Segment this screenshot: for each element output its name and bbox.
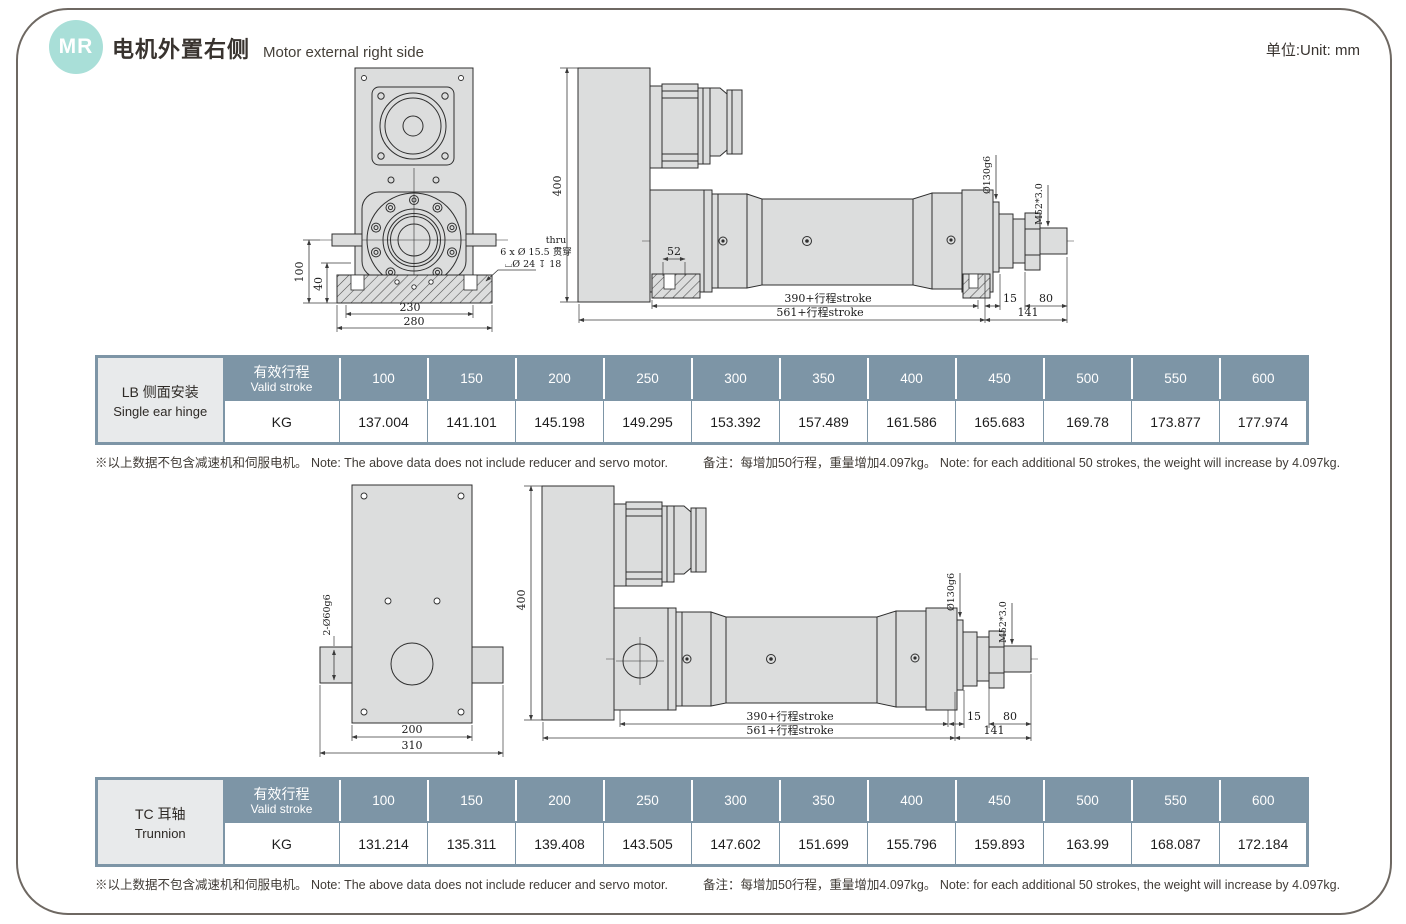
weight-value: 153.392 xyxy=(692,400,780,444)
dim-15: 15 xyxy=(967,710,981,723)
stroke-value: 550 xyxy=(1132,779,1220,823)
stroke-value: 350 xyxy=(780,779,868,823)
valid-stroke-header: 有效行程 Valid stroke xyxy=(224,779,340,823)
weight-value: 147.602 xyxy=(692,822,780,866)
stroke-value: 200 xyxy=(516,357,604,401)
weight-value: 165.683 xyxy=(956,400,1044,444)
stroke-value: 400 xyxy=(868,357,956,401)
front-view-tc: 2-Ø60g6 200 310 xyxy=(320,485,503,757)
weight-value: 145.198 xyxy=(516,400,604,444)
dim-15: 15 xyxy=(1003,292,1017,305)
dim-80: 80 xyxy=(1039,292,1053,305)
dim-141: 141 xyxy=(1018,306,1039,319)
stroke-value: 250 xyxy=(604,357,692,401)
note-per-stroke: 备注：每增加50行程，重量增加4.097kg。 Note: for each a… xyxy=(703,874,1340,893)
callout-counterbore: ⌴Ø 24 ↧ 18 xyxy=(505,259,562,270)
weight-value: 159.893 xyxy=(956,822,1044,866)
dim-280: 280 xyxy=(404,315,425,328)
callout-leader xyxy=(486,270,536,281)
dim-dia130: Ø130g6 xyxy=(946,573,957,611)
stroke-value: 200 xyxy=(516,779,604,823)
stroke-value: 600 xyxy=(1220,357,1308,401)
weight-value: 149.295 xyxy=(604,400,692,444)
hinge-pin-right xyxy=(466,234,496,246)
dim-pin-dia: 2-Ø60g6 xyxy=(322,594,333,635)
stroke-value: 250 xyxy=(604,779,692,823)
trunnion-pin-right xyxy=(471,647,503,683)
dim-m52: M52*3.0 xyxy=(1034,183,1045,225)
stroke-value: 300 xyxy=(692,779,780,823)
callout-thru: thru xyxy=(546,235,567,246)
stroke-value: 500 xyxy=(1044,357,1132,401)
tc-weight-table: TC 耳轴 Trunnion 有效行程 Valid stroke 100 150… xyxy=(95,777,1309,867)
stroke-value: 100 xyxy=(340,357,428,401)
stroke-value: 450 xyxy=(956,779,1044,823)
weight-value: 177.974 xyxy=(1220,400,1308,444)
table-row-label: TC 耳轴 Trunnion xyxy=(97,779,224,866)
weight-value: 157.489 xyxy=(780,400,868,444)
dim-m52: M52*3.0 xyxy=(998,601,1009,643)
dim-561-stroke: 561+行程stroke xyxy=(746,724,833,737)
weight-value: 151.699 xyxy=(780,822,868,866)
trunnion-pin-left xyxy=(320,647,353,683)
kg-label: KG xyxy=(224,822,340,866)
table-label-en: Trunnion xyxy=(98,826,223,841)
callout-holes: 6 x Ø 15.5 贯穿 xyxy=(500,246,571,258)
weight-value: 139.408 xyxy=(516,822,604,866)
stroke-value: 300 xyxy=(692,357,780,401)
table-label-en: Single ear hinge xyxy=(98,404,223,419)
trunnion-plate xyxy=(352,485,472,723)
dim-400: 400 xyxy=(551,176,564,197)
dim-80: 80 xyxy=(1003,710,1017,723)
dim-52: 52 xyxy=(667,245,681,258)
weight-value: 161.586 xyxy=(868,400,956,444)
valid-stroke-header: 有效行程 Valid stroke xyxy=(224,357,340,401)
note-no-motor: ※以上数据不包含减速机和伺服电机。 Note: The above data d… xyxy=(95,452,668,471)
dim-230: 230 xyxy=(400,301,421,314)
weight-value: 141.101 xyxy=(428,400,516,444)
table-label-zh: TC 耳轴 xyxy=(98,804,223,824)
motor-flange xyxy=(372,87,454,165)
dim-390-stroke: 390+行程stroke xyxy=(746,710,833,723)
dim-390-stroke: 390+行程stroke xyxy=(784,292,871,305)
stroke-value: 600 xyxy=(1220,779,1308,823)
table-row-label: LB 侧面安装 Single ear hinge xyxy=(97,357,224,444)
weight-value: 155.796 xyxy=(868,822,956,866)
weight-value: 131.214 xyxy=(340,822,428,866)
lb-weight-table: LB 侧面安装 Single ear hinge 有效行程 Valid stro… xyxy=(95,355,1309,445)
weight-value: 143.505 xyxy=(604,822,692,866)
table-label-zh: LB 侧面安装 xyxy=(98,382,223,402)
weight-value: 168.087 xyxy=(1132,822,1220,866)
weight-value: 137.004 xyxy=(340,400,428,444)
dim-141: 141 xyxy=(984,724,1005,737)
note-per-stroke: 备注：每增加50行程，重量增加4.097kg。 Note: for each a… xyxy=(703,452,1340,471)
weight-value: 169.78 xyxy=(1044,400,1132,444)
dim-200: 200 xyxy=(402,723,423,736)
stroke-value: 400 xyxy=(868,779,956,823)
weight-value: 135.311 xyxy=(428,822,516,866)
stroke-value: 150 xyxy=(428,779,516,823)
side-view-tc: 400 390+行程stroke 561+行程stroke 15 80 141 … xyxy=(515,486,1038,741)
stroke-value: 450 xyxy=(956,357,1044,401)
stroke-value: 350 xyxy=(780,357,868,401)
dim-40: 40 xyxy=(312,277,325,291)
weight-value: 163.99 xyxy=(1044,822,1132,866)
stroke-value: 100 xyxy=(340,779,428,823)
stroke-value: 150 xyxy=(428,357,516,401)
dim-400: 400 xyxy=(515,590,528,611)
stroke-value: 500 xyxy=(1044,779,1132,823)
kg-label: KG xyxy=(224,400,340,444)
dim-561-stroke: 561+行程stroke xyxy=(776,306,863,319)
dim-dia130: Ø130g6 xyxy=(982,156,993,194)
stroke-value: 550 xyxy=(1132,357,1220,401)
weight-value: 172.184 xyxy=(1220,822,1308,866)
note-no-motor: ※以上数据不包含减速机和伺服电机。 Note: The above data d… xyxy=(95,874,668,893)
dim-100: 100 xyxy=(293,262,306,283)
hinge-pin-left xyxy=(332,234,362,246)
front-view-lb: 100 40 230 280 thru 6 x Ø 15.5 贯穿 ⌴Ø 24 … xyxy=(293,68,572,332)
side-view-lb: 400 52 390+行程stroke 561+行程stroke 15 80 1… xyxy=(551,68,1074,323)
dim-310: 310 xyxy=(402,739,423,752)
weight-value: 173.877 xyxy=(1132,400,1220,444)
